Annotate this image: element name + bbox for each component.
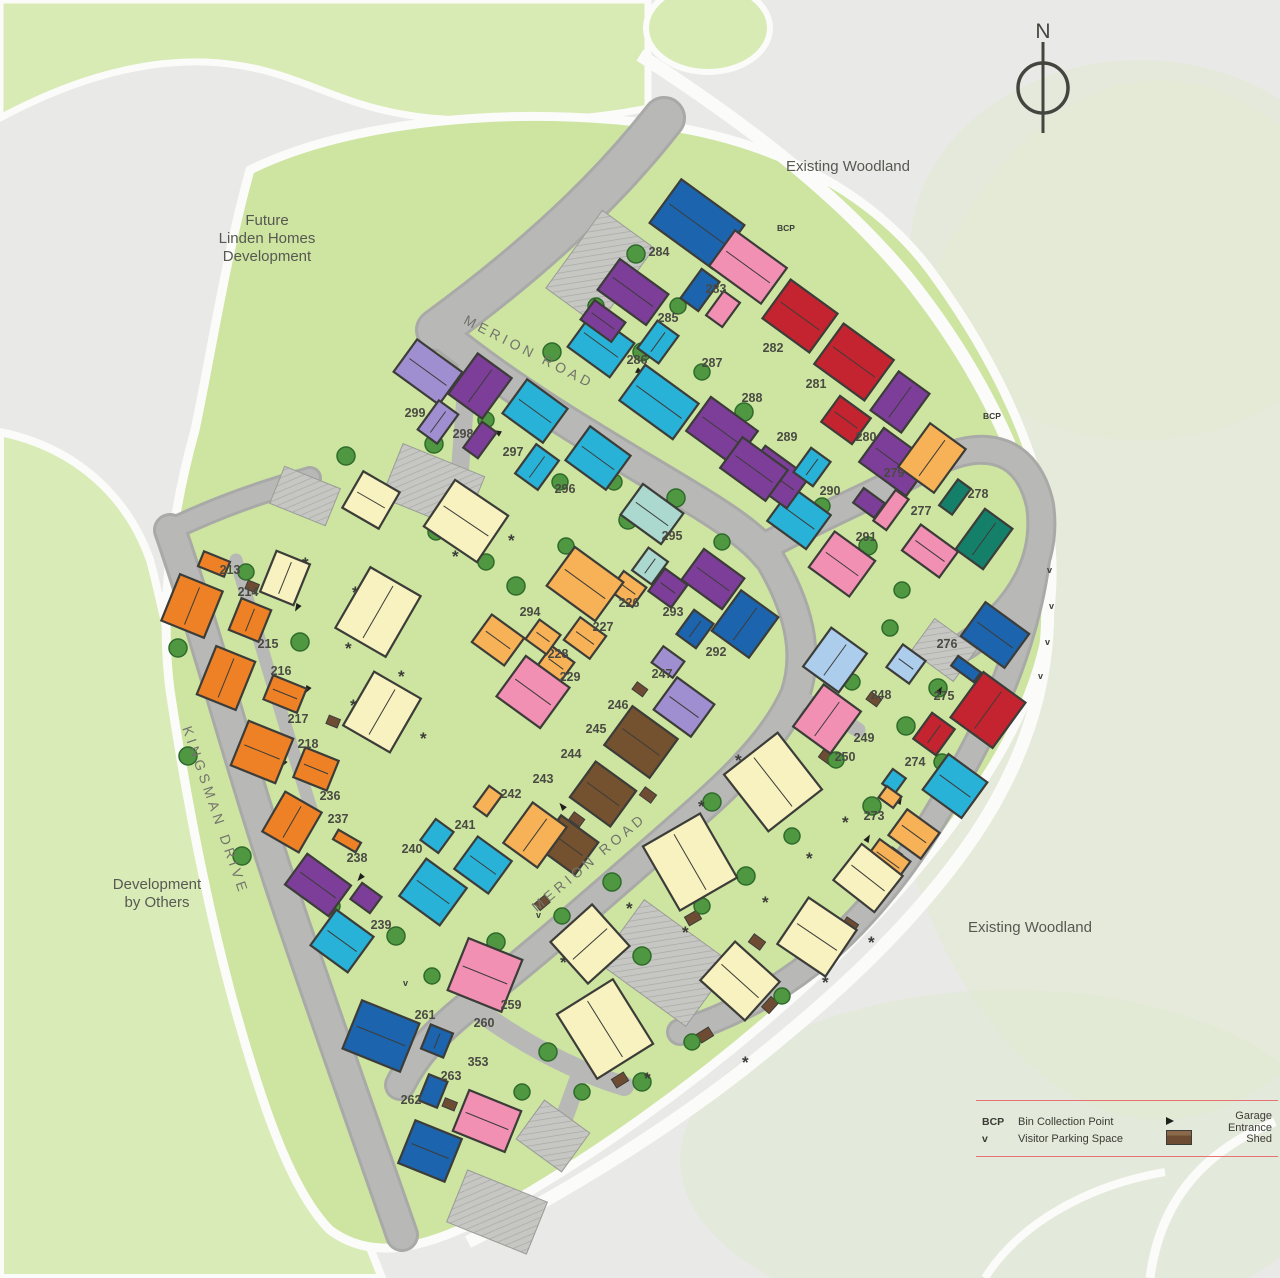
plot-number-label: 294: [520, 605, 541, 619]
site-plan-svg: v v v v v v ** ** ** ** ** ** ** ** ** *…: [0, 0, 1280, 1278]
legend-label-garage-entrance: Garage Entrance: [1202, 1110, 1272, 1134]
plot-number-label: 240: [402, 842, 423, 856]
plot-number-label: 290: [820, 484, 841, 498]
garage-entrance-icon: [1166, 1116, 1202, 1128]
plot-number-label: 284: [649, 245, 670, 259]
plot-number-label: 248: [871, 688, 892, 702]
existing-woodland-right-label: Existing Woodland: [968, 919, 1092, 936]
plot-number-label: 245: [586, 722, 607, 736]
legend: BCP Bin Collection Point Garage Entrance…: [976, 1100, 1278, 1157]
plot-number-label: 237: [328, 812, 349, 826]
plot-number-label: 291: [856, 530, 877, 544]
visitor-parking-symbol: v: [982, 1133, 1018, 1145]
plot-number-label: 281: [806, 377, 827, 391]
svg-text:*: *: [682, 923, 689, 942]
green-nub-top: [646, 0, 770, 72]
plot-number-label: 277: [911, 504, 932, 518]
plot-number-label: 242: [501, 787, 522, 801]
plot-number-label: 236: [320, 789, 341, 803]
svg-text:*: *: [644, 1069, 651, 1088]
plot-number-label: 299: [405, 406, 426, 420]
plot-number-label: 275: [934, 689, 955, 703]
plot-number-label: 279: [884, 466, 905, 480]
svg-text:*: *: [806, 849, 813, 868]
plot-number-label: 261: [415, 1008, 436, 1022]
plot-number-label: 283: [706, 282, 727, 296]
plot-number-label: 287: [702, 356, 723, 370]
plot-number-label: 249: [854, 731, 875, 745]
plot-number-label: 227: [593, 620, 614, 634]
plot-number-label: 293: [663, 605, 684, 619]
plot-number-label: 217: [288, 712, 309, 726]
plot-number-label: 246: [608, 698, 629, 712]
svg-text:*: *: [626, 899, 633, 918]
legend-row: v Visitor Parking Space Shed: [982, 1129, 1272, 1148]
plot-number-label: 215: [258, 637, 279, 651]
plot-number-label: 274: [905, 755, 926, 769]
plot-number-label: 239: [371, 918, 392, 932]
bcp-symbol: BCP: [982, 1116, 1018, 1128]
plot-number-label: 216: [271, 664, 292, 678]
svg-text:v: v: [1038, 671, 1043, 681]
plot-number-label: 278: [968, 487, 989, 501]
svg-text:*: *: [398, 667, 405, 686]
plot-number-label: 282: [763, 341, 784, 355]
plot-number-label: 238: [347, 851, 368, 865]
plot-number-label: 288: [742, 391, 763, 405]
existing-woodland-top-label: Existing Woodland: [786, 158, 910, 175]
plot-number-label: 247: [652, 667, 673, 681]
plot-number-label: 296: [555, 482, 576, 496]
svg-text:*: *: [742, 1053, 749, 1072]
plot-number-label: 285: [658, 311, 679, 325]
plot-number-label: 292: [706, 645, 727, 659]
svg-text:*: *: [868, 933, 875, 952]
plot-number-label: 241: [455, 818, 476, 832]
plot-number-label: 229: [560, 670, 581, 684]
compass-north-label: N: [1035, 20, 1050, 43]
plot-number-label: 250: [835, 750, 856, 764]
svg-text:*: *: [508, 531, 515, 550]
plot-number-label: 280: [856, 430, 877, 444]
legend-label-bin-collection: Bin Collection Point: [1018, 1116, 1166, 1128]
plot-number-label: 353: [468, 1055, 489, 1069]
plot-number-label: 228: [548, 647, 569, 661]
plot-number-label: 297: [503, 445, 524, 459]
plot-number-label: 273: [864, 809, 885, 823]
svg-text:*: *: [842, 813, 849, 832]
development-by-others-label: Developmentby Others: [113, 876, 202, 911]
plot-number-label: 226: [619, 596, 640, 610]
plot-number-label: 262: [401, 1093, 422, 1107]
bcp-label: BCP: [777, 223, 795, 233]
svg-text:v: v: [1045, 637, 1050, 647]
legend-row: BCP Bin Collection Point Garage Entrance: [982, 1110, 1272, 1129]
plot-number-label: 243: [533, 772, 554, 786]
plot-number-label: 218: [298, 737, 319, 751]
plot-number-label: 244: [561, 747, 582, 761]
plot-number-label: 295: [662, 529, 683, 543]
svg-text:v: v: [1049, 601, 1054, 611]
plot-number-label: 259: [501, 998, 522, 1012]
plot-number-label: 289: [777, 430, 798, 444]
svg-text:*: *: [762, 893, 769, 912]
legend-label-visitor-parking: Visitor Parking Space: [1018, 1133, 1166, 1145]
svg-text:*: *: [345, 639, 352, 658]
plot-number-label: 214: [238, 585, 259, 599]
bcp-label: BCP: [983, 411, 1001, 421]
site-plan-page: v v v v v v ** ** ** ** ** ** ** ** ** *…: [0, 0, 1280, 1278]
plot-number-label: 260: [474, 1016, 495, 1030]
plot-number-label: 213: [220, 563, 241, 577]
svg-text:*: *: [420, 729, 427, 748]
plot-number-label: 286: [627, 353, 648, 367]
legend-label-shed: Shed: [1202, 1133, 1272, 1145]
plot-number-label: 263: [441, 1069, 462, 1083]
svg-text:v: v: [1047, 565, 1052, 575]
plot-number-label: 298: [453, 427, 474, 441]
plot-number-label: 276: [937, 637, 958, 651]
shed-icon: [1166, 1130, 1202, 1148]
svg-text:v: v: [403, 978, 408, 988]
